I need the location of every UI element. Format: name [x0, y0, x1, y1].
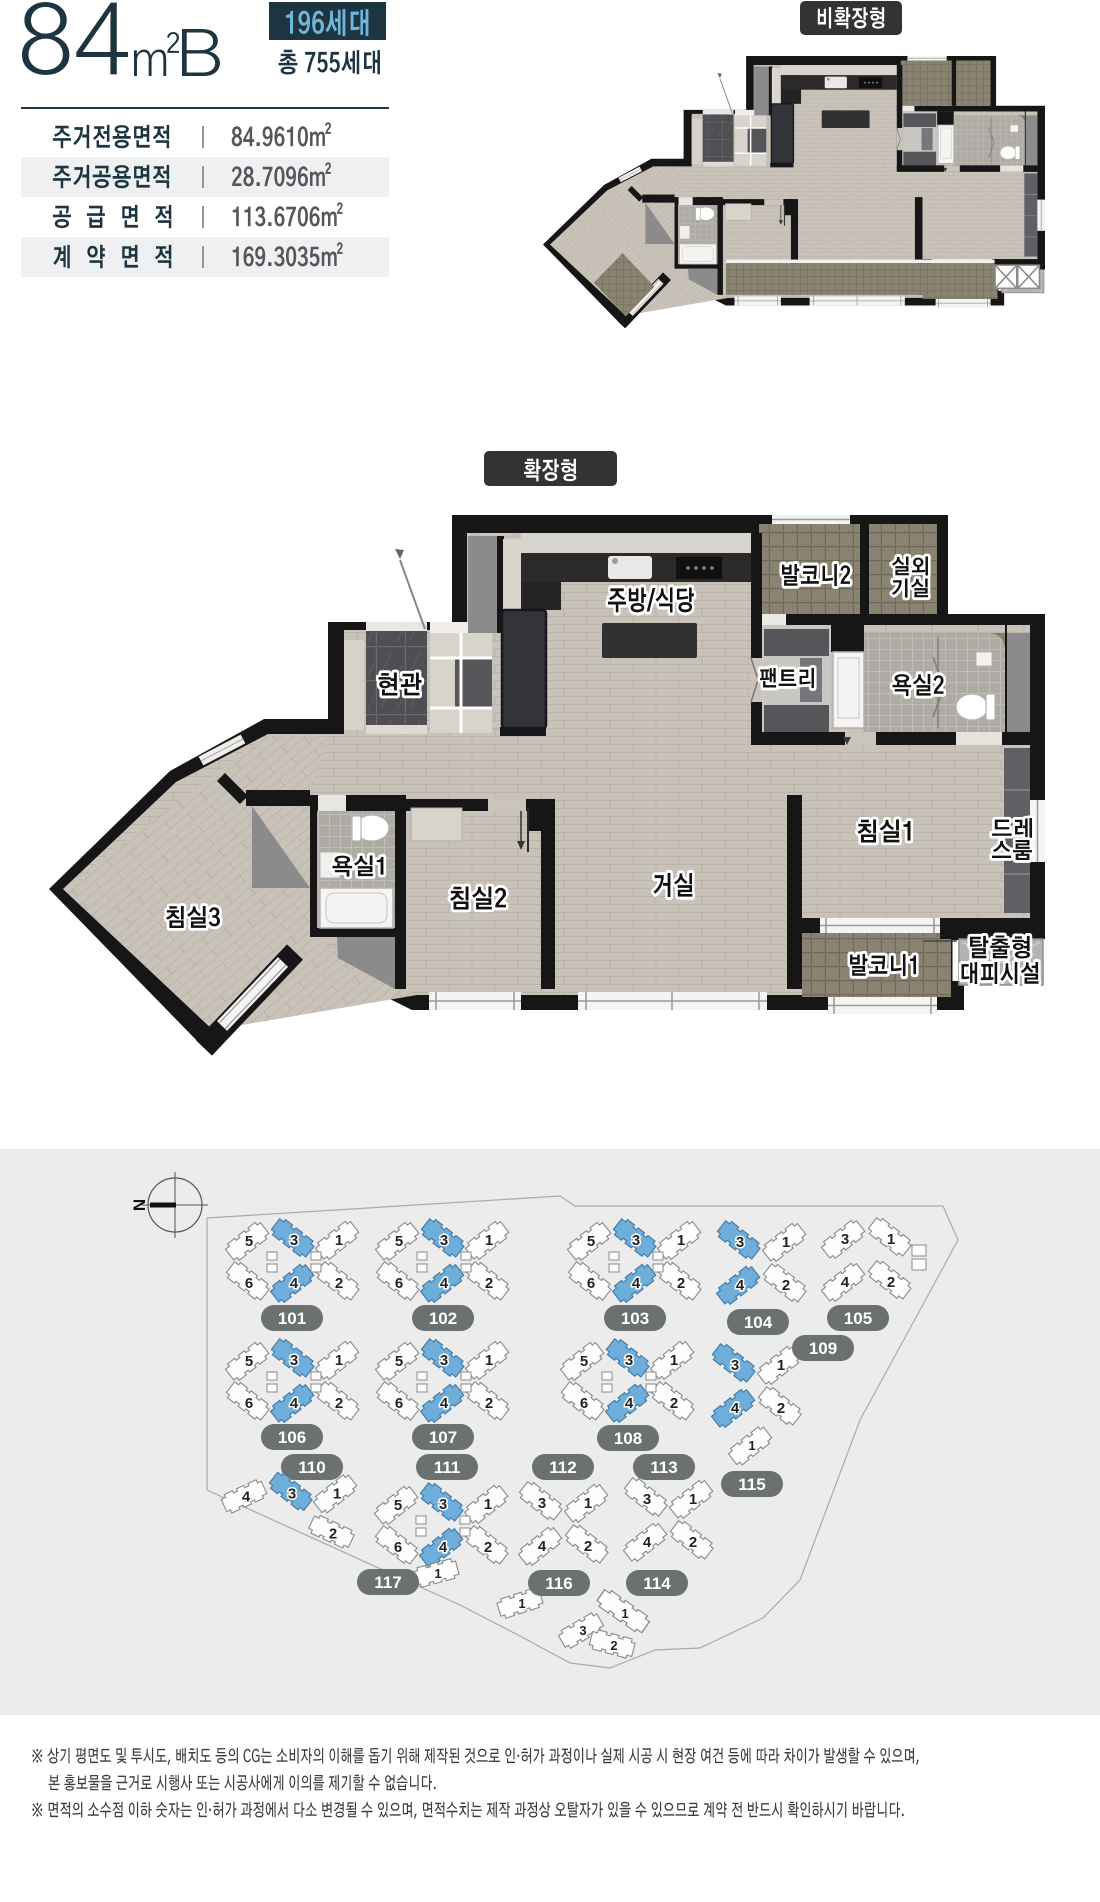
svg-text:108: 108: [614, 1429, 642, 1448]
svg-text:101: 101: [278, 1309, 306, 1328]
svg-text:3: 3: [290, 1352, 298, 1369]
svg-text:5: 5: [395, 1233, 403, 1250]
svg-text:1: 1: [335, 1352, 343, 1369]
svg-text:4: 4: [290, 1275, 299, 1292]
svg-text:2: 2: [484, 1539, 492, 1556]
svg-text:2: 2: [782, 1277, 790, 1294]
svg-text:1: 1: [670, 1352, 678, 1369]
svg-text:5: 5: [580, 1353, 588, 1370]
svg-text:1: 1: [584, 1495, 592, 1512]
svg-text:3: 3: [632, 1232, 640, 1249]
svg-text:4: 4: [731, 1400, 740, 1417]
svg-text:N: N: [130, 1199, 149, 1211]
svg-text:4: 4: [242, 1489, 251, 1506]
svg-text:1: 1: [748, 1438, 755, 1453]
svg-text:3: 3: [290, 1232, 298, 1249]
svg-text:4: 4: [625, 1395, 634, 1412]
svg-text:2: 2: [610, 1638, 617, 1653]
svg-text:113: 113: [650, 1458, 677, 1477]
svg-text:5: 5: [245, 1353, 253, 1370]
svg-text:1: 1: [485, 1352, 493, 1369]
svg-text:3: 3: [841, 1231, 849, 1248]
svg-text:4: 4: [440, 1275, 449, 1292]
svg-text:106: 106: [278, 1428, 306, 1447]
svg-text:109: 109: [809, 1339, 837, 1358]
svg-text:1: 1: [333, 1486, 341, 1503]
svg-text:4: 4: [736, 1277, 745, 1294]
svg-text:2: 2: [485, 1395, 493, 1412]
svg-text:1: 1: [484, 1496, 492, 1513]
svg-text:5: 5: [245, 1233, 253, 1250]
svg-text:3: 3: [288, 1486, 296, 1503]
svg-text:114: 114: [643, 1574, 671, 1593]
svg-text:4: 4: [440, 1395, 449, 1412]
svg-text:6: 6: [245, 1395, 253, 1412]
svg-text:3: 3: [731, 1357, 739, 1374]
svg-text:6: 6: [395, 1395, 403, 1412]
svg-text:3: 3: [643, 1491, 651, 1508]
svg-text:1: 1: [518, 1596, 525, 1611]
svg-text:4: 4: [538, 1538, 547, 1555]
svg-text:111: 111: [434, 1458, 461, 1477]
svg-text:2: 2: [689, 1534, 697, 1551]
svg-text:1: 1: [887, 1231, 895, 1248]
svg-text:4: 4: [632, 1275, 641, 1292]
svg-text:104: 104: [744, 1313, 773, 1332]
svg-text:105: 105: [844, 1309, 872, 1328]
svg-text:4: 4: [439, 1539, 448, 1556]
svg-text:1: 1: [777, 1357, 785, 1374]
svg-text:2: 2: [887, 1274, 895, 1291]
svg-text:1: 1: [621, 1606, 628, 1621]
svg-text:1: 1: [335, 1232, 343, 1249]
svg-text:112: 112: [549, 1458, 576, 1477]
svg-text:102: 102: [429, 1309, 457, 1328]
svg-text:103: 103: [621, 1309, 649, 1328]
svg-text:2: 2: [584, 1538, 592, 1555]
svg-text:2: 2: [677, 1275, 685, 1292]
svg-text:1: 1: [689, 1491, 697, 1508]
svg-text:6: 6: [395, 1275, 403, 1292]
svg-text:110: 110: [298, 1458, 325, 1477]
svg-text:3: 3: [440, 1352, 448, 1369]
svg-text:1: 1: [434, 1566, 441, 1581]
svg-text:3: 3: [439, 1496, 447, 1513]
svg-text:6: 6: [580, 1395, 588, 1412]
svg-text:1: 1: [677, 1232, 685, 1249]
svg-text:1: 1: [485, 1232, 493, 1249]
svg-text:1: 1: [782, 1234, 790, 1251]
svg-text:2: 2: [335, 1395, 343, 1412]
svg-text:2: 2: [335, 1275, 343, 1292]
svg-text:5: 5: [587, 1233, 595, 1250]
svg-text:6: 6: [245, 1275, 253, 1292]
svg-text:107: 107: [429, 1428, 457, 1447]
svg-text:3: 3: [736, 1234, 744, 1251]
svg-text:5: 5: [395, 1353, 403, 1370]
svg-text:3: 3: [538, 1495, 546, 1512]
svg-text:4: 4: [841, 1274, 850, 1291]
svg-text:3: 3: [579, 1623, 586, 1638]
svg-text:2: 2: [485, 1275, 493, 1292]
svg-text:4: 4: [643, 1534, 652, 1551]
svg-text:117: 117: [374, 1573, 401, 1592]
svg-text:2: 2: [777, 1400, 785, 1417]
svg-text:116: 116: [545, 1574, 572, 1593]
svg-text:6: 6: [587, 1275, 595, 1292]
svg-text:115: 115: [738, 1475, 765, 1494]
svg-text:2: 2: [329, 1526, 337, 1543]
svg-text:4: 4: [290, 1395, 299, 1412]
svg-text:2: 2: [670, 1395, 678, 1412]
svg-text:3: 3: [440, 1232, 448, 1249]
svg-text:3: 3: [625, 1352, 633, 1369]
svg-text:6: 6: [394, 1539, 402, 1556]
svg-text:5: 5: [394, 1497, 402, 1514]
